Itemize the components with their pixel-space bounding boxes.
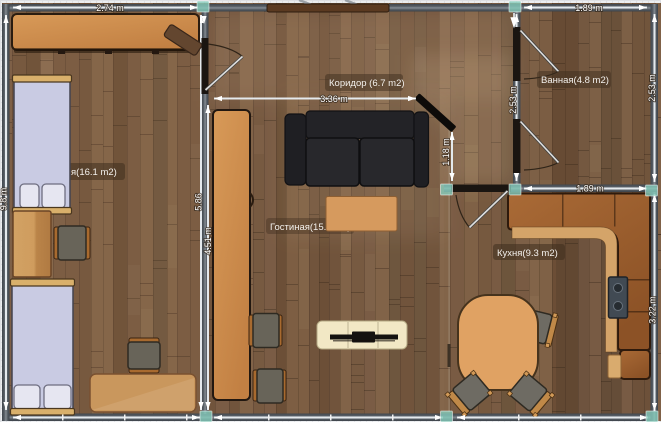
svg-text:3.36 m: 3.36 m [320,94,348,104]
svg-text:5.86: 5.86 [194,193,204,211]
svg-text:2.53 m: 2.53 m [508,86,518,114]
svg-text:2.74 m: 2.74 m [96,3,124,13]
svg-text:Кухня(9.3 m2): Кухня(9.3 m2) [497,248,558,259]
svg-text:1.89 m: 1.89 m [576,184,604,194]
svg-text:2.53 m: 2.53 m [647,74,657,102]
svg-text:1.89 m: 1.89 m [575,3,603,13]
svg-text:1.18 m: 1.18 m [441,138,451,166]
svg-text:3.22 m: 3.22 m [648,296,658,324]
svg-text:Ванная(4.8 m2): Ванная(4.8 m2) [541,75,609,86]
svg-text:4.51 m: 4.51 m [203,227,213,255]
svg-text:9.8 m: 9.8 m [0,188,9,211]
svg-text:Коридор (6.7 m2): Коридор (6.7 m2) [329,78,405,89]
